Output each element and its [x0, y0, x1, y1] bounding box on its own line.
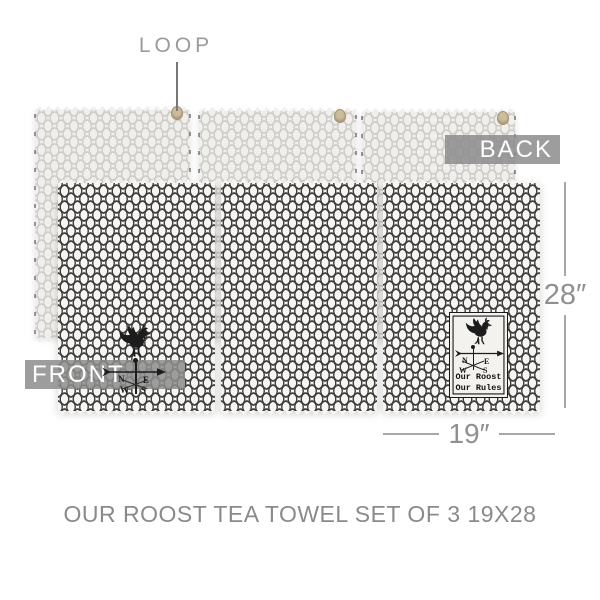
- compass-letter-s: S: [141, 385, 146, 395]
- height-dimension: 28″: [542, 182, 588, 408]
- loop-callout-label: LOOP: [106, 34, 246, 58]
- hang-loop-icon: [334, 109, 346, 123]
- weathervane-rod: [135, 360, 137, 394]
- hang-loop-icon: [497, 111, 509, 125]
- dimension-line: [564, 182, 566, 276]
- product-image: LOOP BACK FRONT N E W S: [0, 0, 600, 600]
- dimension-line: [499, 433, 555, 435]
- rooster-icon: [117, 324, 153, 360]
- back-label: BACK: [480, 136, 553, 164]
- stamp-text-line1: Our Roost: [450, 372, 507, 383]
- front-towel: [221, 183, 377, 411]
- loop-pointer-line: [176, 62, 178, 111]
- compass-letter-n: N: [462, 356, 468, 365]
- compass-letter-e: E: [143, 375, 149, 385]
- height-dimension-value: 28″: [544, 276, 587, 315]
- compass-letter-n: N: [118, 374, 125, 384]
- rooster-icon: [464, 317, 494, 347]
- rooster-weathervane-graphic: N E W S: [98, 324, 170, 398]
- weathervane-arrow-icon: [102, 367, 166, 377]
- compass-letter-w: W: [120, 385, 129, 395]
- stamp-text: Our Roost Our Rules: [450, 372, 507, 393]
- product-caption: OUR ROOST TEA TOWEL SET OF 3 19X28: [0, 501, 600, 528]
- dimension-line: [383, 433, 439, 435]
- back-label-banner: BACK: [445, 135, 560, 164]
- stamp-text-line2: Our Rules: [450, 383, 507, 394]
- compass-letter-e: E: [484, 357, 489, 366]
- stitch-edge: [34, 114, 36, 334]
- width-dimension: 19″: [383, 419, 555, 449]
- roost-stamp: N E W S Our Roost Our Rules: [449, 312, 508, 398]
- dimension-line: [564, 315, 566, 409]
- width-dimension-value: 19″: [448, 418, 489, 450]
